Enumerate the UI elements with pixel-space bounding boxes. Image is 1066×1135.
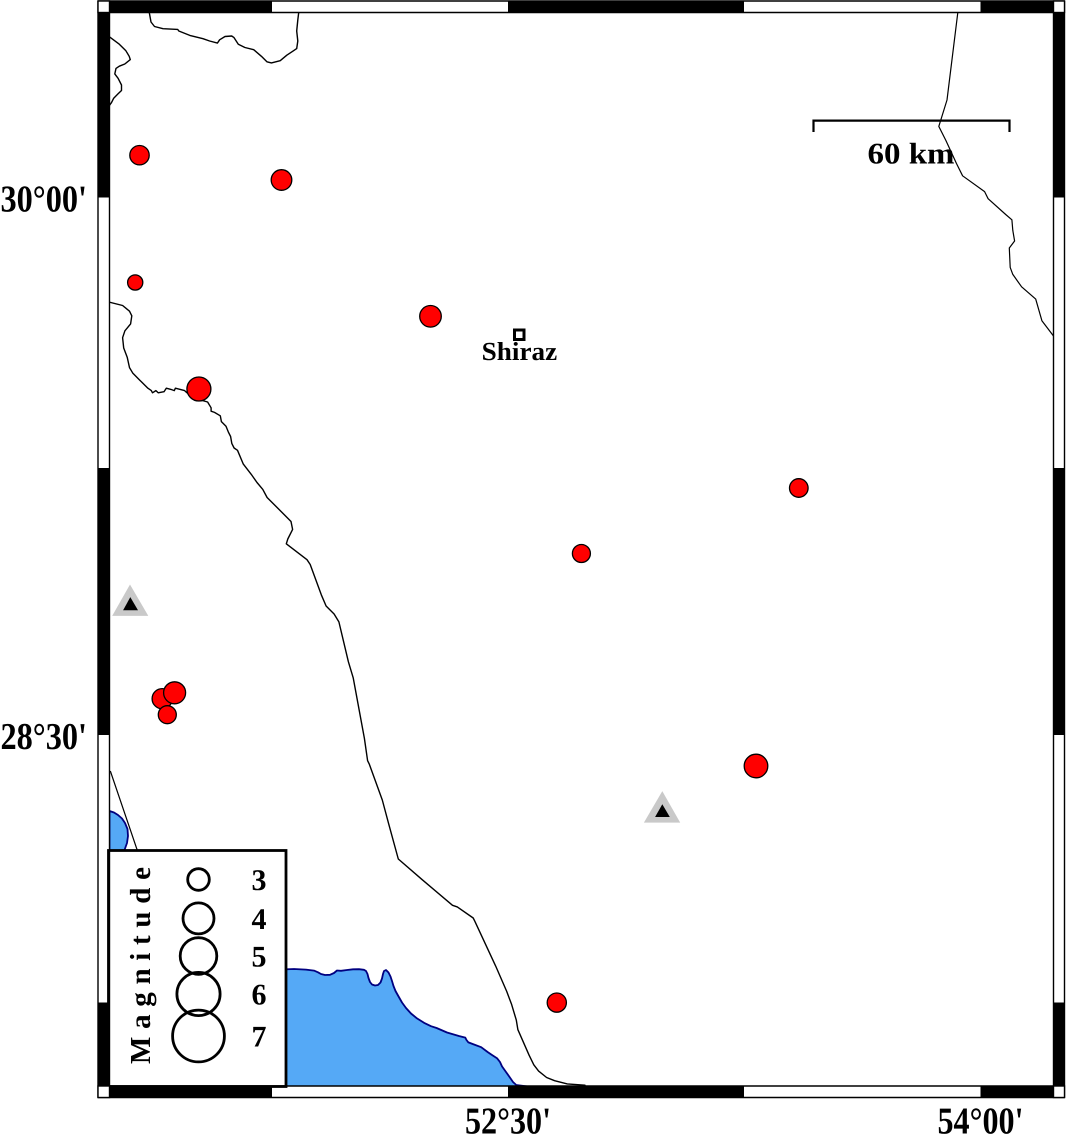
svg-text:3: 3 [252,864,267,897]
svg-text:52°30': 52°30' [465,1101,551,1135]
svg-text:60 km: 60 km [868,138,955,171]
svg-text:54°00': 54°00' [938,1101,1024,1135]
svg-text:Shiraz: Shiraz [482,337,558,366]
svg-text:28°30': 28°30' [1,716,88,758]
svg-text:30°00': 30°00' [1,179,88,221]
svg-text:5: 5 [252,941,267,974]
svg-text:6: 6 [252,979,267,1012]
svg-text:7: 7 [252,1021,267,1054]
svg-text:4: 4 [252,903,267,936]
svg-text:Magnitude: Magnitude [125,859,157,1064]
